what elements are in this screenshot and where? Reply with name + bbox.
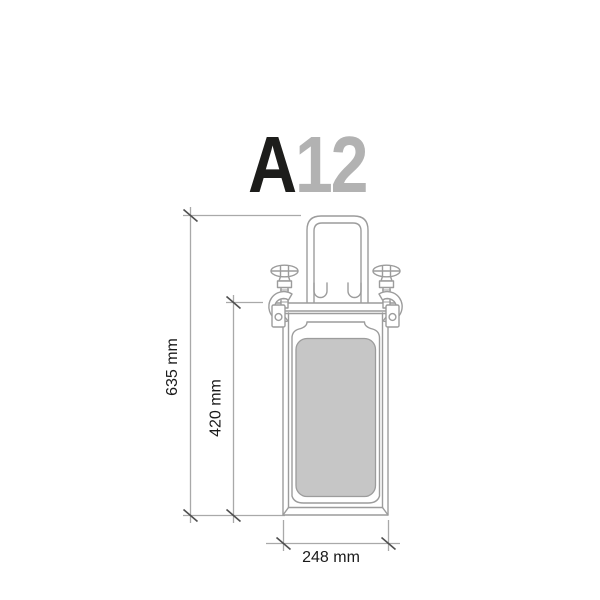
- board: [292, 322, 380, 503]
- product-title-number: 12: [295, 120, 366, 209]
- technical-drawing-canvas: A12 635 mm 420 mm 248 mm: [0, 0, 600, 600]
- mounting-bar: [271, 303, 401, 314]
- clamp-plate-hole: [275, 314, 282, 321]
- product-title-series: A: [248, 120, 296, 209]
- frame-bottom-bevel-left: [283, 508, 289, 516]
- frame-bottom-bevel-right: [383, 508, 389, 516]
- dimension-overall-height: 635 mm: [164, 207, 301, 523]
- product-drawing: [269, 216, 402, 515]
- dim-420-label: 420 mm: [208, 379, 225, 437]
- dim-635-label: 635 mm: [164, 338, 181, 396]
- product-title-text: A12: [248, 120, 366, 209]
- product-title: A12: [248, 120, 366, 209]
- handle-tube-end-left: [314, 283, 327, 298]
- dimension-width: 248 mm: [266, 520, 400, 566]
- dimension-inner-height: 420 mm: [208, 295, 264, 523]
- handle-outer-edge: [307, 216, 368, 304]
- handle: [307, 216, 368, 304]
- clamp-nut: [278, 281, 292, 288]
- dim-248-label: 248 mm: [302, 549, 360, 566]
- right-clamp: [373, 265, 402, 327]
- handle-tube-end-right: [348, 283, 361, 298]
- left-clamp: [269, 265, 298, 327]
- product-dimension-diagram: A12 635 mm 420 mm 248 mm: [0, 0, 600, 600]
- mounting-bar-body: [271, 303, 401, 311]
- board-panel: [296, 339, 376, 497]
- handle-inner-edge: [314, 223, 361, 304]
